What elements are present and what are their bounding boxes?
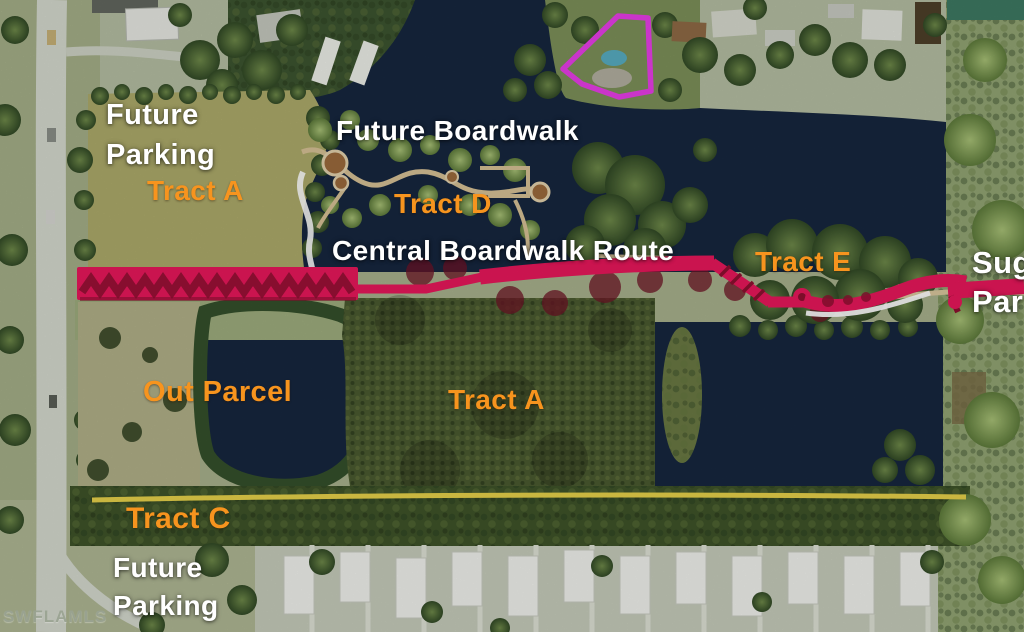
label-edge-clipped: Sug Par: [972, 243, 1024, 321]
label-tract-e: Tract E: [755, 247, 851, 276]
label-tract-d: Tract D: [394, 189, 492, 218]
label-tract-a-top: Tract A: [147, 176, 244, 205]
label-tract-a-center: Tract A: [448, 385, 545, 414]
mls-watermark: SWFLAMLS: [3, 608, 107, 626]
label-central-boardwalk-route: Central Boardwalk Route: [332, 236, 674, 265]
label-future-boardwalk: Future Boardwalk: [336, 116, 579, 145]
label-future-parking-top: Future Parking: [106, 95, 215, 175]
aerial-site-map: Future Parking Tract A Future Boardwalk …: [0, 0, 1024, 632]
label-tract-c: Tract C: [126, 503, 231, 535]
label-future-parking-bottom: Future Parking: [113, 549, 219, 625]
label-out-parcel: Out Parcel: [143, 377, 292, 407]
